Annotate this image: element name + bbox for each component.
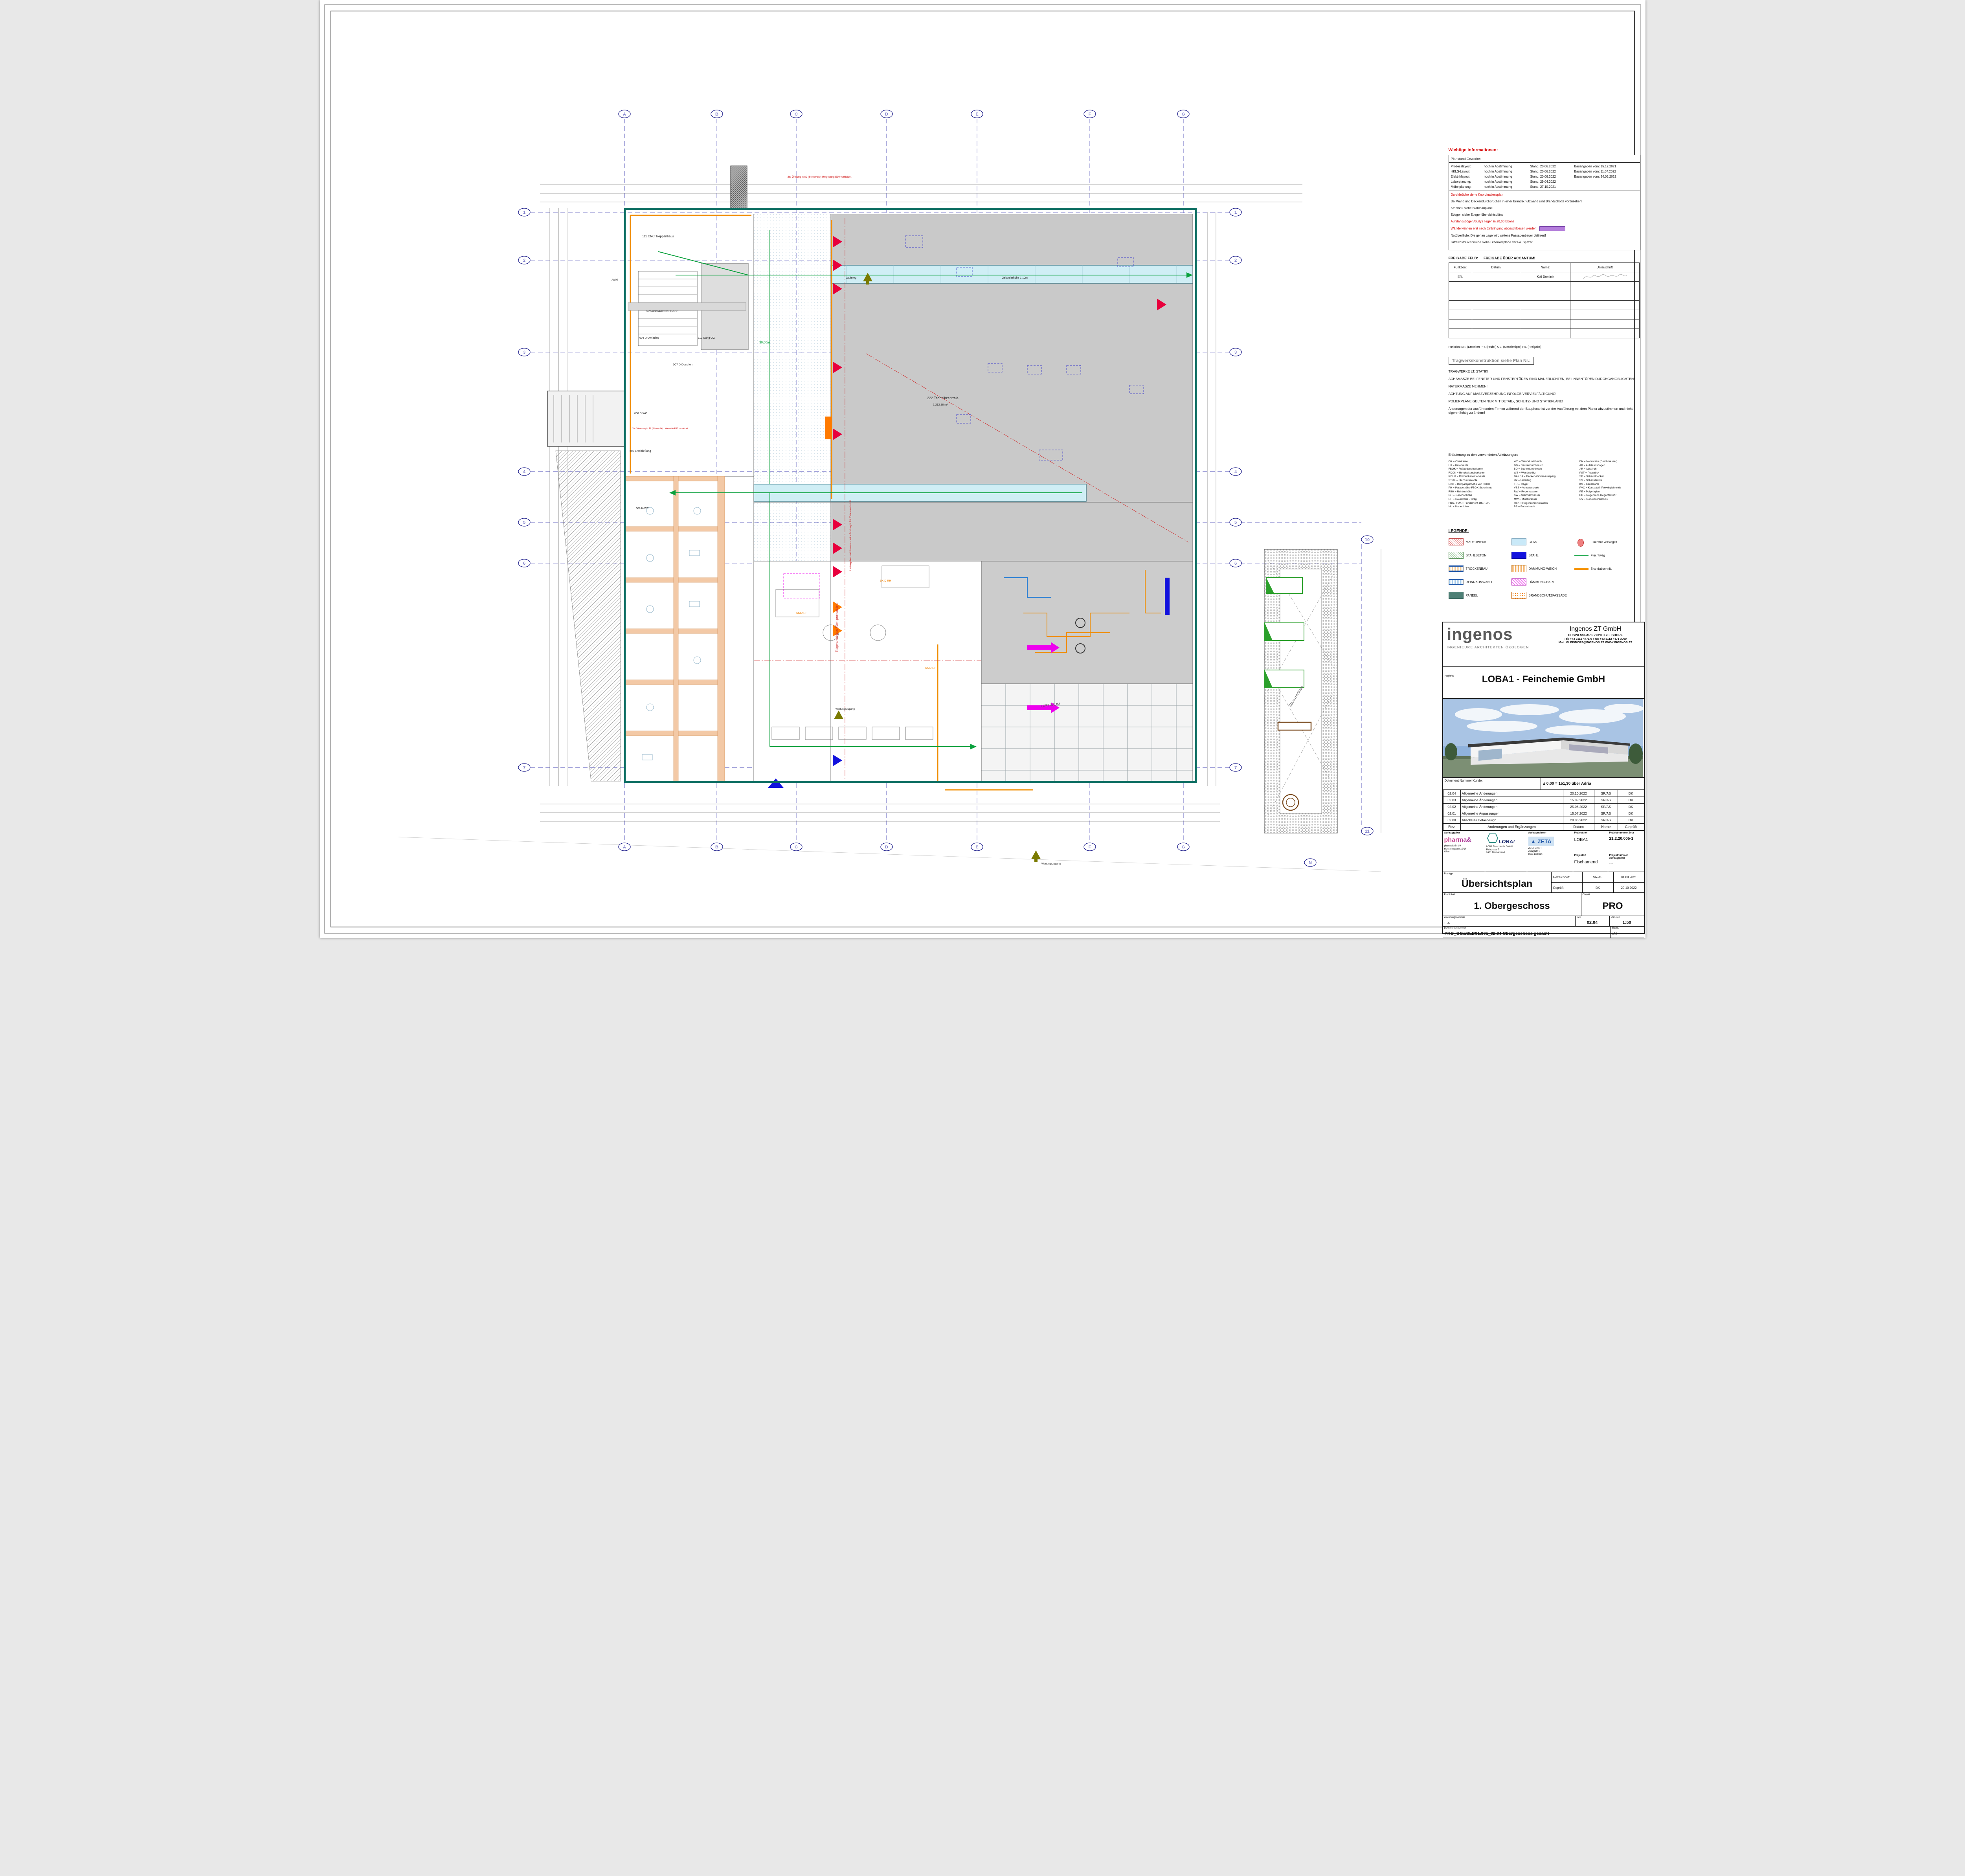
wichtige-informationen-title: Wichtige Informationen:	[1449, 148, 1498, 152]
legend-symbol	[1574, 565, 1589, 572]
auftraggeber-pharma: Auftraggeber pharma& pharma& GmbH Hanste…	[1443, 831, 1485, 872]
hall-lower-right	[981, 561, 1193, 684]
firm-address: BUSINESSPARK 2 8200 GLEISDORF	[1547, 633, 1644, 637]
firm-phone: Tel: +43 3112 4471 0 Fax: +43 3112 4471 …	[1547, 637, 1644, 641]
legend-swatch	[1511, 552, 1526, 559]
grid-bubble-label: 1	[1234, 210, 1236, 215]
freigabe-table: Funktion: Datum: Name: Unterschrift ER. …	[1449, 262, 1640, 338]
plantyp-value: Übersichtsplan	[1443, 878, 1551, 890]
abk-entry: VSS = Vorsatzschale	[1514, 486, 1579, 490]
grid-bubble-label: 4	[1234, 470, 1237, 474]
abk-entry: GV = Geruchverschluss	[1579, 497, 1645, 501]
info-notes: Durchbrüche siehe Koordinationsplan Bei …	[1449, 191, 1640, 250]
equipment-zone	[754, 561, 981, 782]
plan-label: 2te Öffnung in A2 (Steinwolle) Umgebung …	[788, 175, 852, 178]
firm-name: Ingenos ZT GmbH	[1547, 626, 1644, 633]
legend-item: STAHL	[1511, 549, 1574, 562]
legend-label: MAUERWERK	[1466, 540, 1487, 544]
legend-item: REINRAUMWAND	[1449, 575, 1511, 589]
plan-label: 1.212,98 m²	[933, 404, 948, 406]
gewerk-bauangaben	[1574, 184, 1638, 189]
abk-entry: KS = Kanalsohle	[1579, 483, 1645, 486]
gewerk-stand: Stand: 27.10.2021	[1530, 184, 1574, 189]
abk-entry: TR = Träger	[1514, 483, 1579, 486]
info-note-line: Gitterrostdurchbrüche siehe Gitterrostpl…	[1451, 240, 1638, 244]
grid-bubble-label: 1	[523, 210, 525, 215]
gewerk-status: noch in Abstimmung	[1484, 184, 1530, 189]
abk-col1: OK = OberkanteUK = UnterkanteFBOK = Fußb…	[1449, 460, 1514, 509]
legend-item: TROCKENBAU	[1449, 562, 1511, 575]
gewerk-stand: Stand: 20.06.2022	[1530, 164, 1574, 169]
abk-entry: PE = Polyethylen	[1579, 490, 1645, 494]
info-note-line: Wände können erst nach Einbringung abges…	[1451, 226, 1638, 231]
note-line: NATURMASZE NEHMEN!	[1449, 384, 1642, 388]
legend-label: TROCKENBAU	[1466, 567, 1488, 571]
abk-entry: MW = Mischwasser	[1514, 497, 1579, 501]
planstand-row: Elektriklayout: noch in Abstimmung Stand…	[1451, 174, 1638, 179]
abk-entry: RR = Regenrohr, Regenfallrohr	[1579, 494, 1645, 497]
abk-entry: GH = Geschoßhöhe	[1449, 494, 1514, 497]
planstand-row: Prozesslayout: noch in Abstimmung Stand:…	[1451, 164, 1638, 169]
grid-bubble-label: 5	[1234, 520, 1236, 525]
gewerk-stand: Stand: 29.04.2022	[1530, 179, 1574, 184]
abk-entry: OK = Oberkante	[1449, 460, 1514, 464]
grid-bubble-label: A	[623, 112, 626, 117]
plan-label: Wartungszugang	[836, 708, 855, 710]
plan-label: Trägeranschluss 30cm promatisiert!	[835, 602, 839, 652]
gewerk-status: noch in Abstimmung	[1484, 169, 1530, 174]
revision-row: 02.00 Abschluss Detaildesign 20.06.2022 …	[1443, 817, 1644, 824]
existing-building-hatch	[556, 451, 621, 781]
legend-item: BRANDSCHUTZFASSADE	[1511, 589, 1574, 602]
plan-label: Geländerhöhe 1,10m	[1002, 277, 1028, 279]
plan-label: 112 Gang OG	[698, 337, 715, 340]
grid-bubble-label: 6	[1234, 561, 1236, 566]
grid-bubble-label: C	[795, 112, 798, 117]
legend-symbol	[1574, 552, 1589, 558]
objekt-value: PRO	[1581, 901, 1644, 912]
purple-wall-swatch	[1539, 226, 1565, 231]
abk-entry: PVC = Kunststoff (Polyvinylchlorid)	[1579, 486, 1645, 490]
plan-label: 222 Technikzentrale	[927, 396, 959, 400]
legend-swatch	[1449, 538, 1464, 545]
abk-entry: SD = Schachtdeckel	[1579, 475, 1645, 479]
info-note-line: Notüberläufe: Die genau Lage wird seiten…	[1451, 234, 1638, 238]
col-datum: Datum:	[1472, 263, 1521, 272]
rev-value: 02.04	[1576, 920, 1609, 925]
plan-label: SKID RH	[880, 580, 891, 582]
plan-label: 609 Erschließung	[630, 450, 651, 453]
abbreviations: OK = OberkanteUK = UnterkanteFBOK = Fußb…	[1449, 460, 1645, 509]
abk-entry: FBOK = Fußbodenoberkante	[1449, 467, 1514, 471]
plantyp-label: Plantyp	[1444, 872, 1453, 875]
legend-symbol	[1574, 539, 1589, 545]
projekt-label: Projekt:	[1445, 675, 1454, 677]
grid-bubble-label: E	[975, 112, 978, 117]
info-note-line: Aufstandsbögen/Gullys liegen in ±0,00 Eb…	[1451, 220, 1638, 224]
legend-swatch	[1511, 578, 1526, 586]
logo-wordmark: ingenos	[1447, 626, 1545, 642]
abk-entry: STUK = Sturzunterkante	[1449, 479, 1514, 483]
gewerk-status: noch in Abstimmung	[1484, 174, 1530, 179]
abk-entry: AR = Abfallrohr	[1579, 467, 1645, 471]
ingenos-logo: ingenos INGENIEURE ARCHITEKTEN ÖKOLOGEN	[1443, 622, 1547, 666]
abk-entry: PH = Parapethöhe FBOK-Stocklichte	[1449, 486, 1514, 490]
abk-entry: DN = Nennweite (Durchmesser)	[1579, 460, 1645, 464]
abk-col2: WD = WanddurchbruchDD = Deckendurchbruch…	[1514, 460, 1579, 509]
freigabe-row	[1449, 301, 1639, 310]
legend-item: GLAS	[1511, 535, 1574, 549]
loba-logo: LOBA!	[1499, 839, 1515, 844]
grid-bubble-label: 5	[523, 520, 525, 525]
legend-label: Fluchtweg	[1591, 554, 1605, 557]
revision-header-row: Rev. Änderungen und Ergänzungen Datum Na…	[1443, 824, 1644, 830]
geprueft-name: DK	[1582, 883, 1614, 893]
plan-label: Technikschacht vor EG-1OG	[646, 310, 678, 313]
freigabe-row	[1449, 310, 1639, 319]
abk-entry: AB = Aufstandsbogen	[1579, 464, 1645, 468]
abk-entry: UZ = Unterzug	[1514, 479, 1579, 483]
info-note-line: Stiegen siehe Stiegenübersichtspläne	[1451, 213, 1638, 217]
info-note-line: Bei Wand und Deckendurchbrüchen in einer…	[1451, 200, 1638, 204]
abk-entry: FOK / FUK = Fundament-OK / -UK	[1449, 501, 1514, 505]
legend-item: Brandabschnitt	[1574, 562, 1644, 575]
plan-label: 30,00m	[759, 341, 770, 344]
planstand-row: Laborplanung: noch in Abstimmung Stand: …	[1451, 179, 1638, 184]
abk-entry: DA / BA = Decken-/Bodenaussparg.	[1514, 475, 1579, 479]
general-notes: TRAGWERKE LT. STATIK!ACHSMASZE BEI FENST…	[1449, 369, 1642, 418]
objekt-label: Objekt	[1583, 893, 1590, 896]
abk-entry: RH = Raumhöhe - fertig	[1449, 497, 1514, 501]
zeichnungsnummer-value: n.z.	[1445, 921, 1575, 925]
legend-swatch	[1449, 565, 1464, 572]
dokumentennummer-value: PRO_OG&CLD01.001_02.04 Obergeschoss gesa…	[1445, 931, 1610, 936]
abk-entry: PS = Putzschacht	[1514, 505, 1579, 509]
grid-bubble-label: G	[1181, 845, 1185, 850]
abk-entry: SS = Schachtsohle	[1579, 479, 1645, 483]
projekttitel-cell: Projekttitel LOBA1 Projektort Fischamend	[1573, 831, 1608, 872]
legend-item: Fluchtweg	[1574, 549, 1644, 562]
col-funktion: Funktion:	[1449, 263, 1472, 272]
plan-label: 606 D-WC	[634, 412, 647, 415]
abk-entry: UK = Unterkante	[1449, 464, 1514, 468]
gewerk-status: noch in Abstimmung	[1484, 179, 1530, 184]
gezeichnet-date: 04.08.2021	[1614, 876, 1644, 879]
massstab-value: 1:50	[1610, 920, 1644, 925]
legend-item: STAHLBETON	[1449, 549, 1511, 562]
legend-label: DÄMMUNG-WEICH	[1529, 567, 1557, 571]
hall-technikzentrale	[831, 214, 1193, 517]
gewerk-status: noch in Abstimmung	[1484, 164, 1530, 169]
note-line: TRAGWERKE LT. STATIK!	[1449, 369, 1642, 373]
gewerk-bauangaben: Bauangaben vom: 24.03.2022	[1574, 174, 1638, 179]
legend-label: Brandabschnitt	[1591, 567, 1612, 571]
abk-col3: DN = Nennweite (Durchmesser)AB = Aufstan…	[1579, 460, 1645, 509]
plan-label: 5C7 D-Duschen	[673, 363, 692, 366]
freigabe-row	[1449, 282, 1639, 291]
grid-bubble-label: 2	[1234, 258, 1236, 263]
freigabe-header: FREIGABE FELD:FREIGABE ÜBER ACCANTUM!	[1449, 256, 1535, 260]
legend: MAUERWERKSTAHLBETONTROCKENBAUREINRAUMWAN…	[1449, 535, 1644, 602]
plan-label: SKID RH	[796, 612, 807, 615]
legend-swatch	[1449, 579, 1464, 585]
dok-kunde-label: Dokument Nummer Kunde:	[1443, 778, 1541, 789]
revision-row: 02.04 Allgemeine Änderungen 20.10.2022 S…	[1443, 790, 1644, 797]
note-line: POLIERPLÄNE GELTEN NUR MIT DETAIL-, SCHL…	[1449, 399, 1642, 403]
projektnr-ag-value: ---	[1609, 862, 1643, 866]
grid-bubble-label: A	[623, 845, 626, 850]
abk-entry: RDOK = Rohdeckenoberkante	[1449, 471, 1514, 475]
planstand-header: Planstand Gewerke:	[1449, 155, 1640, 163]
plan-label: 111 CNC Treppenhaus	[642, 235, 674, 238]
legend-label: STAHL	[1529, 554, 1539, 557]
auftragnehmer-zeta: Auftragnehmer ▲ ZETA ZETA GmbH Zetaplatz…	[1527, 831, 1573, 872]
abk-entry: DD = Deckendurchbruch	[1514, 464, 1579, 468]
abk-entry: RBH = Rohbauhöhe	[1449, 490, 1514, 494]
projekt-title: LOBA1 - Feinchemie GmbH	[1443, 674, 1644, 685]
plan-label: Laufsteg	[846, 277, 856, 279]
sanitary-block	[625, 476, 725, 782]
abbreviations-title: Erläuterung zu den verwendeten Abkürzung…	[1449, 453, 1518, 457]
legend-item: MAUERWERK	[1449, 535, 1511, 549]
legend-label: DÄMMUNG-HART	[1529, 580, 1555, 584]
revision-row: 02.03 Allgemeine Änderungen 15.09.2022 S…	[1443, 797, 1644, 804]
grid-bubble-label: 11	[1365, 829, 1370, 834]
grid-bubble-label: D	[885, 845, 888, 850]
col-name: Name:	[1521, 263, 1570, 272]
legend-label: Fluchttür versiegelt	[1591, 540, 1618, 544]
legend-swatch	[1449, 592, 1464, 599]
legend-label: PANEEL	[1466, 594, 1478, 597]
firm-contact: Ingenos ZT GmbH BUSINESSPARK 2 8200 GLEI…	[1547, 622, 1644, 666]
note-line: Änderungen der ausführenden Firmen währe…	[1449, 407, 1642, 415]
grid-bubble-label: F	[1088, 112, 1091, 117]
abk-entry: WS = Wandschlitz	[1514, 471, 1579, 475]
grid-bubble-label: 2	[523, 258, 525, 263]
planinhalt-label: Planinhalt	[1444, 893, 1456, 896]
auftraggeber-loba: LOBA! LOBA Feinchemie GmbH Fehrgasse 7 2…	[1485, 831, 1527, 872]
shaft-hatch	[731, 166, 747, 208]
zeta-logo: ▲ ZETA	[1528, 837, 1554, 846]
revision-row: 02.01 Allgemeine Anpassungen 15.07.2022 …	[1443, 810, 1644, 817]
pharma-logo: pharma&	[1444, 837, 1484, 844]
legend-label: GLAS	[1529, 540, 1537, 544]
plan-label: 2m Dämmung in A2 (Steinwolle) Unterseite…	[632, 428, 688, 430]
plan-label: 608 H-WC	[636, 507, 649, 510]
gewerk-bauangaben: Bauangaben vom: 11.07.2022	[1574, 169, 1638, 174]
loba-hex-icon	[1486, 833, 1498, 843]
grid-bubble-label: F	[1088, 845, 1091, 850]
projekttitel-value: LOBA1	[1574, 837, 1607, 842]
abk-entry: BD = Bodendurchbruch	[1514, 467, 1579, 471]
abk-entry: WD = Wanddurchbruch	[1514, 460, 1579, 464]
plan-sheet: ABCDEFGABCDEFG123456712345671011N 111 CN…	[320, 0, 1645, 938]
legend-swatch	[1511, 565, 1526, 572]
title-block: ingenos INGENIEURE ARCHITEKTEN ÖKOLOGEN …	[1442, 622, 1645, 934]
luftraum-beam-grid	[981, 684, 1193, 782]
gewerk-label: Möbelplanung:	[1451, 184, 1484, 189]
signature	[1581, 273, 1628, 281]
gewerk-stand: Stand: 20.06.2022	[1530, 174, 1574, 179]
grid-bubble-label: N	[1309, 861, 1312, 865]
legend-label: BRANDSCHUTZFASSADE	[1529, 594, 1567, 597]
abk-entry: PST = Putzstück	[1579, 471, 1645, 475]
note-line: ACHTUNG AUF MASZVERZEHRUNG INFOLGE VERVI…	[1449, 392, 1642, 396]
legend-label: REINRAUMWAND	[1466, 580, 1492, 584]
planstand-row: HKLS-Layout: noch in Abstimmung Stand: 2…	[1451, 169, 1638, 174]
gewerk-bauangaben: Bauangaben vom: 15.12.2021	[1574, 164, 1638, 169]
grid-bubble-label: 3	[1234, 350, 1236, 355]
freigabe-row	[1449, 291, 1639, 301]
abk-entry: RW = Regenwasser	[1514, 490, 1579, 494]
grid-bubble-label: 7	[1234, 765, 1236, 770]
grid-bubble-label: B	[715, 845, 718, 850]
planinhalt-value: 1. Obergeschoss	[1443, 901, 1581, 912]
grid-bubble-label: 10	[1364, 538, 1369, 542]
tragwerk-header: Tragwerkskonstruktion siehe Plan Nr.:	[1449, 357, 1534, 365]
gewerk-bauangaben	[1574, 179, 1638, 184]
legend-item: Fluchttür versiegelt	[1574, 535, 1644, 549]
logo-subline: INGENIEURE ARCHITEKTEN ÖKOLOGEN	[1447, 645, 1545, 649]
abk-entry: RDUK = Rohdeckenunterkante	[1449, 475, 1514, 479]
revision-row: 02.02 Allgemeine Änderungen 25.08.2022 S…	[1443, 804, 1644, 810]
plan-label: SKID RH	[925, 667, 936, 670]
blattnr-value: 1/1	[1612, 931, 1644, 936]
freigabe-row	[1449, 329, 1639, 338]
plan-label: 604 D-Umladen	[639, 337, 659, 340]
grid-bubble-label: D	[885, 112, 888, 117]
planstand-box: Planstand Gewerke: Prozesslayout: noch i…	[1449, 155, 1640, 250]
abk-entry: ML = Mauerlichte	[1449, 505, 1514, 509]
legend-item: PANEEL	[1449, 589, 1511, 602]
plan-label: Lastangaben und Serverschrankaufstellung…	[850, 500, 852, 571]
abk-entry: RPH = Rohparapethöhe von FBOK	[1449, 483, 1514, 486]
grid-bubble-label: B	[715, 112, 718, 117]
firm-mail: Mail: GLEISDORF@INGENOS.AT WWW.INGENOS.A…	[1547, 641, 1644, 644]
planstand-row: Möbelplanung: noch in Abstimmung Stand: …	[1451, 184, 1638, 189]
legend-label: STAHLBETON	[1466, 554, 1487, 557]
grid-bubble-label: 6	[523, 561, 525, 566]
grid-bubble-label: 7	[523, 765, 525, 770]
col-unterschrift: Unterschrift	[1570, 263, 1639, 272]
gewerk-label: HKLS-Layout:	[1451, 169, 1484, 174]
legend-item: DÄMMUNG-HART	[1511, 575, 1574, 589]
legend-item: DÄMMUNG-WEICH	[1511, 562, 1574, 575]
projektort-value: Fischamend	[1574, 860, 1607, 865]
abk-entry: SW = Schmutzwasser	[1514, 494, 1579, 497]
gewerk-stand: Stand: 20.06.2022	[1530, 169, 1574, 174]
grid-bubble-label: 3	[523, 350, 525, 355]
plan-label: AW05	[612, 279, 618, 281]
projektnr-zeta-value: 21.2.20.005-1	[1609, 837, 1643, 841]
left-annex-stair	[547, 391, 625, 446]
note-line: ACHSMASZE BEI FENSTER UND FENSTERTÜREN S…	[1449, 377, 1642, 381]
dok-kunde-value: ± 0,00 = 151,30 über Adria	[1541, 778, 1644, 789]
freigabe-footnote: Funktion: ER. (Ersteller) PR. (Prüfer) G…	[1449, 345, 1541, 349]
legend-title: LEGENDE:	[1449, 529, 1469, 533]
grid-bubble-label: C	[795, 845, 798, 850]
building-rendering	[1443, 699, 1644, 778]
hall-center-band	[831, 502, 1193, 561]
legend-swatch	[1511, 592, 1526, 599]
grid-bubble-label: G	[1181, 112, 1185, 117]
gewerk-label: Laborplanung:	[1451, 179, 1484, 184]
legend-swatch	[1449, 552, 1464, 559]
info-note-line: Durchbrüche siehe Koordinationsplan	[1451, 193, 1638, 197]
gewerk-label: Prozesslayout:	[1451, 164, 1484, 169]
revision-table: 02.04 Allgemeine Änderungen 20.10.2022 S…	[1443, 790, 1644, 830]
info-note-line: Stahlbau siehe Stahlbaupläne	[1451, 206, 1638, 210]
grid-bubble-label: 4	[523, 470, 525, 474]
freigabe-row	[1449, 319, 1639, 329]
freigabe-row: ER. Koll Dominik	[1449, 272, 1639, 282]
legend-swatch	[1511, 538, 1526, 545]
gewerk-label: Elektriklayout:	[1451, 174, 1484, 179]
projektnummer-cell: Projektnummer Zeta 21.2.20.005-1 Projekt…	[1608, 831, 1644, 872]
plan-label: Wartungszugang	[1041, 863, 1061, 865]
abk-entry: RSK = Regenrohrsinkkasten	[1514, 501, 1579, 505]
planstand-rows: Prozesslayout: noch in Abstimmung Stand:…	[1449, 163, 1640, 191]
geprueft-date: 20.10.2022	[1614, 886, 1644, 890]
gezeichnet-name: SR/AS	[1582, 872, 1614, 882]
grid-bubble-label: E	[975, 845, 978, 850]
